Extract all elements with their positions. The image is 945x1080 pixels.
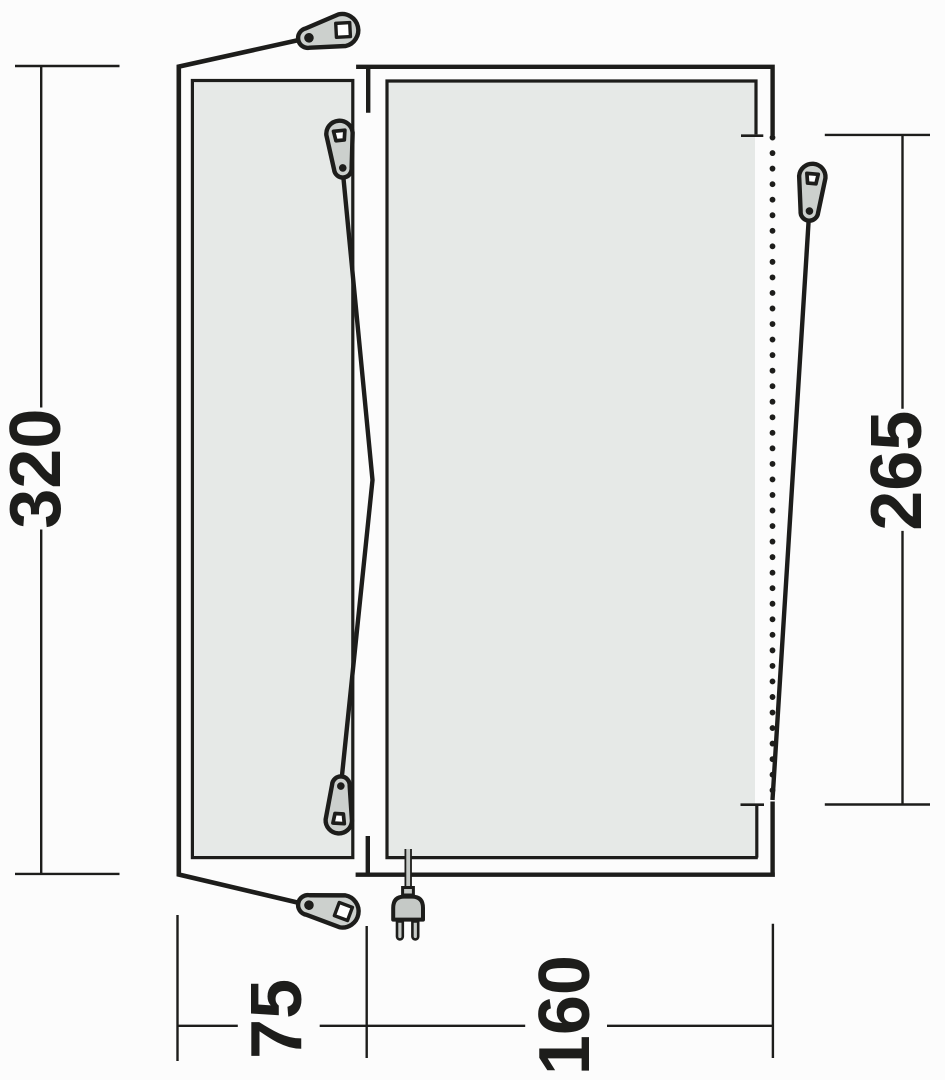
svg-text:265: 265 bbox=[857, 411, 937, 531]
svg-text:320: 320 bbox=[0, 409, 76, 529]
svg-text:160: 160 bbox=[525, 955, 605, 1075]
svg-text:75: 75 bbox=[237, 979, 317, 1059]
